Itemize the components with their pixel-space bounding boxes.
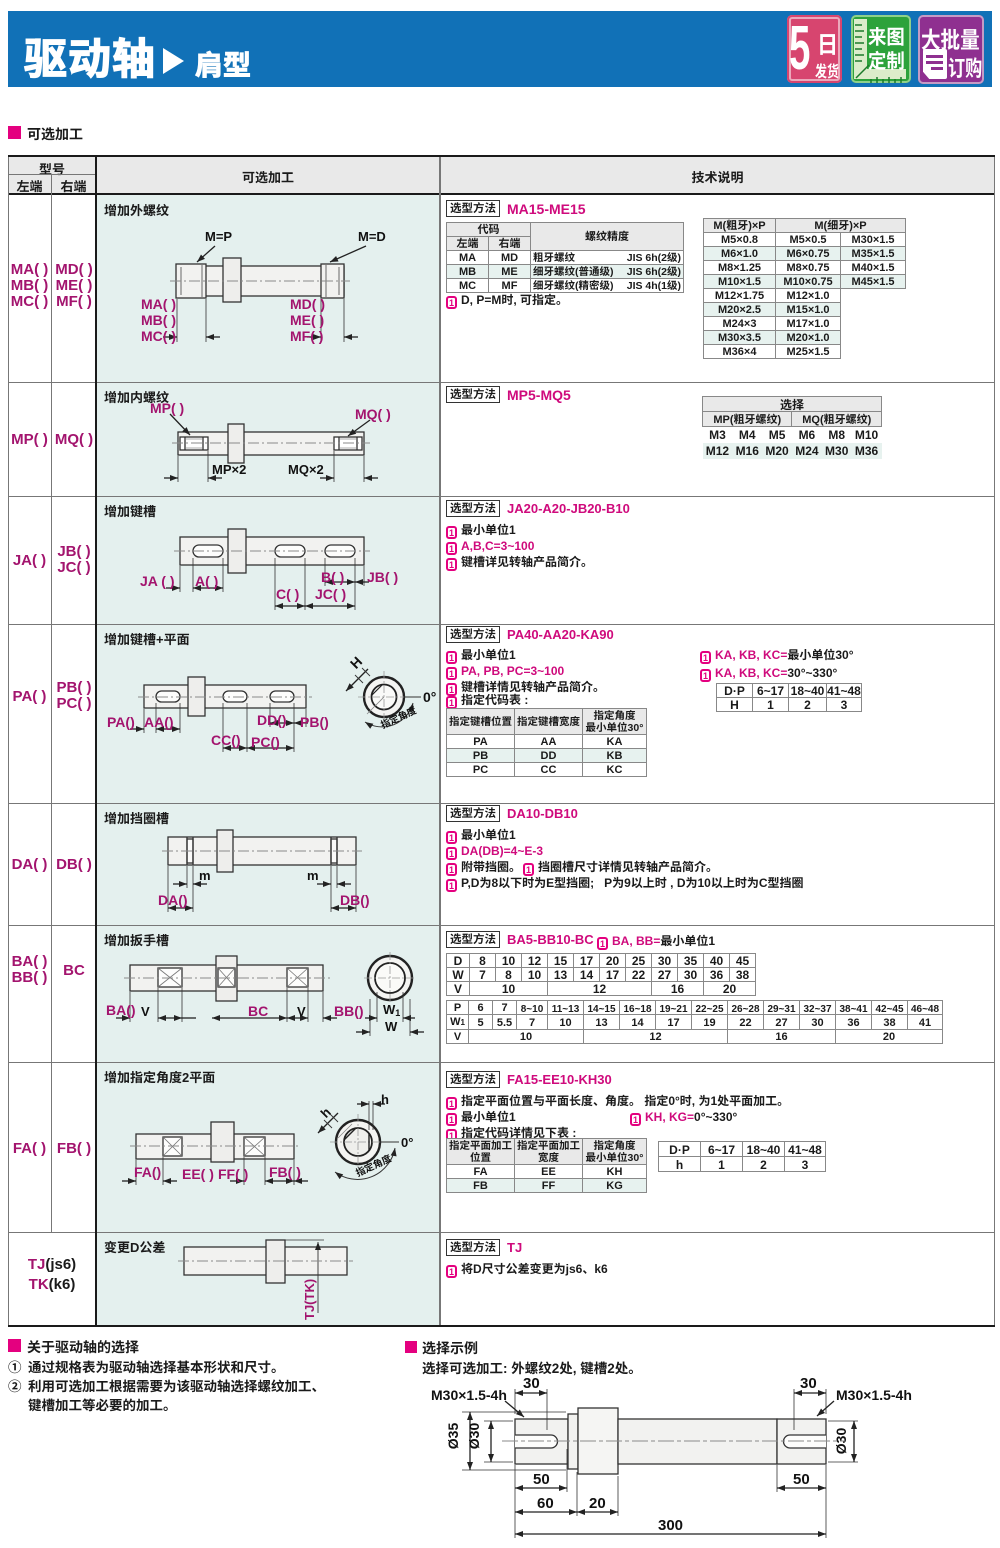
svg-text:FF( ): FF( ) xyxy=(218,1164,248,1184)
svg-text:30: 30 xyxy=(800,1372,817,1393)
svg-text:AA(): AA() xyxy=(144,712,174,732)
svg-text:PB(): PB() xyxy=(300,712,329,732)
svg-text:MQ×2: MQ×2 xyxy=(288,459,324,478)
svg-text:JC( ): JC( ) xyxy=(315,584,346,604)
svg-text:0°: 0° xyxy=(401,1132,413,1151)
svg-text:DA(): DA() xyxy=(158,890,188,910)
svg-text:BA(): BA() xyxy=(106,1000,136,1020)
svg-text:50: 50 xyxy=(793,1468,810,1489)
svg-text:M30×1.5-4h: M30×1.5-4h xyxy=(431,1385,507,1405)
svg-text:0°: 0° xyxy=(423,687,436,707)
svg-text:JB( ): JB( ) xyxy=(367,567,398,587)
svg-text:BB(): BB() xyxy=(334,1001,364,1021)
svg-text:CC(): CC() xyxy=(211,730,241,750)
svg-text:JA ( ): JA ( ) xyxy=(140,571,174,591)
svg-text:MP×2: MP×2 xyxy=(212,459,246,478)
svg-text:Ø30: Ø30 xyxy=(464,1423,484,1450)
svg-text:PC(): PC() xyxy=(251,732,280,752)
svg-text:FB( ): FB( ) xyxy=(269,1162,301,1182)
svg-text:W: W xyxy=(385,1016,398,1035)
svg-text:A( ): A( ) xyxy=(195,571,218,591)
svg-text:EE( ): EE( ) xyxy=(182,1164,214,1184)
svg-text:20: 20 xyxy=(589,1492,606,1513)
svg-text:MC( ): MC( ) xyxy=(141,326,176,346)
svg-text:MQ( ): MQ( ) xyxy=(355,404,391,424)
svg-text:BC: BC xyxy=(248,1001,268,1021)
svg-text:C( ): C( ) xyxy=(276,584,299,604)
svg-text:m: m xyxy=(307,865,319,884)
svg-text:V: V xyxy=(297,1001,306,1020)
svg-text:PA(): PA() xyxy=(107,712,135,732)
svg-text:DD(): DD() xyxy=(257,710,287,730)
svg-text:M=P: M=P xyxy=(205,226,232,245)
svg-text:h: h xyxy=(315,1102,334,1121)
svg-text:h: h xyxy=(381,1089,389,1108)
svg-text:MF( ): MF( ) xyxy=(290,326,323,346)
svg-text:M=D: M=D xyxy=(358,226,386,245)
svg-text:V: V xyxy=(141,1001,150,1020)
svg-text:60: 60 xyxy=(537,1492,554,1513)
svg-text:Ø35: Ø35 xyxy=(443,1423,463,1450)
svg-text:300: 300 xyxy=(658,1514,683,1535)
svg-text:M30×1.5-4h: M30×1.5-4h xyxy=(836,1385,912,1405)
svg-text:m: m xyxy=(199,865,211,884)
svg-text:MP( ): MP( ) xyxy=(150,398,184,418)
svg-text:DB(): DB() xyxy=(340,890,370,910)
svg-text:FA(): FA() xyxy=(134,1162,161,1182)
svg-text:50: 50 xyxy=(533,1468,550,1489)
svg-text:TJ(TK): TJ(TK) xyxy=(299,1279,318,1320)
